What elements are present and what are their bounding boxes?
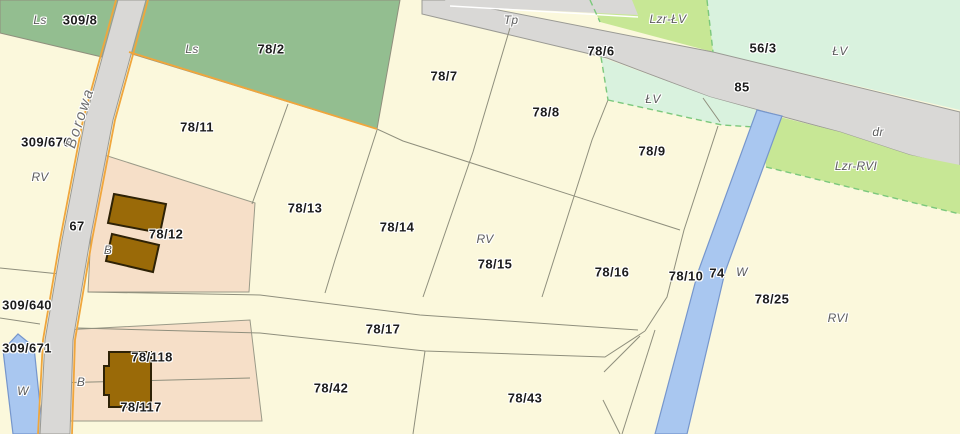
cadastral-map-canvas: [0, 0, 960, 434]
residential-area-78-118: [64, 320, 262, 421]
building-78-118: [104, 352, 151, 407]
cadastral-map-viewport[interactable]: 309/878/278/778/678/856/385309/67678/117…: [0, 0, 960, 434]
